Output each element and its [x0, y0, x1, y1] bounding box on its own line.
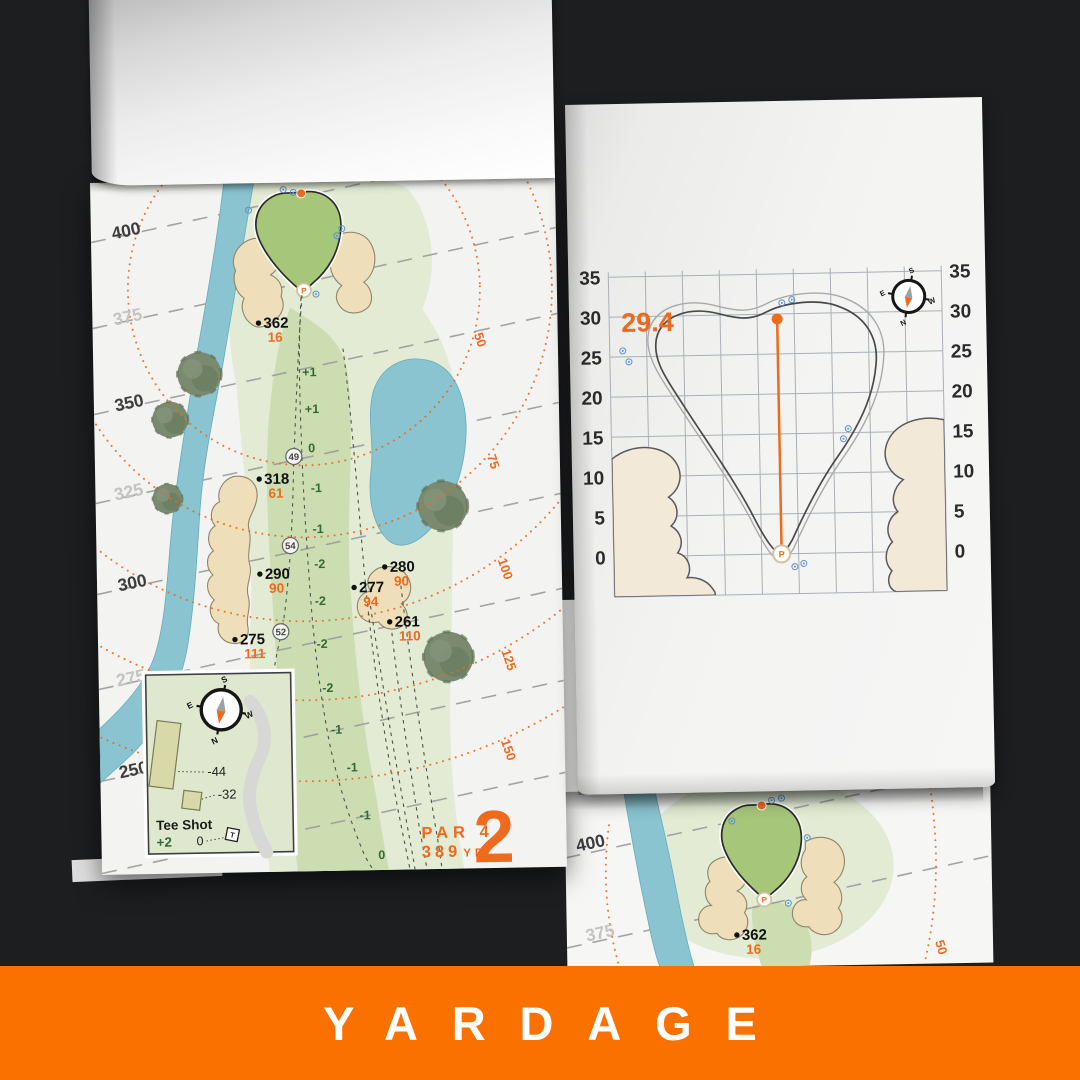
distance-label: 350: [113, 390, 146, 416]
svg-text:35: 35: [579, 268, 601, 289]
arc-label-100: 100: [495, 556, 516, 581]
pin-dot: [297, 189, 306, 198]
svg-text:49: 49: [288, 452, 299, 463]
green-detail-chart: P 29.4 35 30 25 20 15 10 5 0: [565, 97, 995, 795]
banner-label: YARDAGE: [289, 996, 790, 1051]
svg-text:10: 10: [583, 468, 605, 489]
hole-number: 2: [473, 795, 516, 875]
arc-label-50: 50: [471, 330, 490, 349]
svg-text:20: 20: [951, 381, 973, 402]
axis-labels-left: 35 30 25 20 15 10 5 0: [579, 268, 606, 569]
svg-text:P: P: [301, 286, 307, 295]
svg-text:-2: -2: [322, 681, 333, 695]
approach-point: P: [773, 545, 790, 562]
product-photo: P: [0, 0, 1080, 1080]
axis-labels-right: 35 30 25 20 15 10 5 0: [949, 261, 976, 562]
svg-text:15: 15: [952, 421, 974, 442]
distance-label: 375: [584, 920, 617, 946]
svg-text:30: 30: [580, 308, 602, 329]
hole-map: P: [90, 175, 567, 875]
svg-text:54: 54: [285, 541, 296, 552]
svg-text:111: 111: [244, 646, 266, 661]
distance-label: 325: [112, 479, 145, 505]
svg-text:0: 0: [308, 441, 315, 455]
svg-text:W: W: [927, 295, 938, 307]
tee-shot-inset: -44 -32 Tee Shot +2 0 T: [143, 666, 295, 856]
svg-text:P: P: [779, 549, 785, 559]
next-hole-fragment: P 400 375 50 362 16: [564, 783, 993, 970]
svg-text:-2: -2: [314, 557, 325, 571]
green-contour-inner: [655, 301, 880, 556]
arc-label-75: 75: [484, 452, 503, 471]
arc-labels: 50 75 100 125 150: [471, 330, 522, 763]
svg-text:-1: -1: [331, 723, 342, 737]
svg-text:E: E: [878, 288, 886, 298]
green-detail-page: P 29.4 35 30 25 20 15 10 5 0: [565, 97, 995, 795]
arc-label-50: 50: [932, 938, 950, 956]
svg-text:0: 0: [595, 548, 606, 569]
svg-text:N: N: [899, 318, 908, 328]
svg-text:20: 20: [581, 388, 603, 409]
svg-text:52: 52: [275, 627, 286, 638]
svg-text:-1: -1: [311, 481, 322, 495]
arc-label-150: 150: [498, 737, 519, 762]
tee-marker-icon: T: [225, 828, 239, 842]
svg-text:5: 5: [594, 508, 605, 529]
svg-text:35: 35: [949, 261, 971, 282]
approach-point: P: [297, 283, 311, 297]
tee-box-front: [182, 790, 202, 810]
svg-text:90: 90: [394, 573, 409, 588]
svg-text:5: 5: [954, 501, 965, 522]
approach-point: P: [757, 892, 771, 906]
distance-label: 400: [574, 830, 607, 856]
svg-text:-1: -1: [359, 808, 370, 822]
hole-map-page: P: [90, 175, 567, 875]
pin-position-dot: [772, 313, 783, 324]
svg-text:-2: -2: [316, 637, 327, 651]
pin-depth-value: 29.4: [621, 307, 674, 338]
distance-label: 300: [116, 570, 149, 596]
distance-label: 375: [111, 304, 144, 330]
svg-text:+1: +1: [305, 402, 320, 416]
svg-text:P: P: [762, 895, 768, 904]
svg-text:25: 25: [581, 348, 603, 369]
svg-text:25: 25: [951, 341, 973, 362]
distance-label: 400: [110, 218, 143, 244]
svg-text:110: 110: [399, 628, 421, 643]
svg-text:16: 16: [268, 330, 284, 345]
svg-text:15: 15: [582, 428, 604, 449]
handicap-value: +2: [156, 835, 172, 850]
svg-text:0: 0: [378, 848, 385, 862]
yardage-banner: YARDAGE: [0, 966, 1080, 1080]
flipped-up-page: [89, 0, 555, 186]
zero-label: 0: [196, 834, 203, 848]
svg-text:30: 30: [950, 301, 972, 322]
svg-text:-2: -2: [315, 594, 326, 608]
svg-text:0: 0: [954, 541, 965, 562]
svg-text:+1: +1: [302, 365, 317, 379]
svg-text:16: 16: [746, 942, 762, 957]
svg-text:94: 94: [363, 594, 379, 609]
svg-text:61: 61: [268, 486, 284, 501]
svg-text:-1: -1: [347, 760, 358, 774]
bunker: [612, 446, 716, 597]
arc-label-125: 125: [498, 647, 519, 672]
bunker: [884, 418, 948, 592]
tee-offset-front: -32: [218, 787, 237, 802]
tee-offset-back: -44: [207, 764, 226, 779]
svg-text:-1: -1: [312, 522, 323, 536]
svg-text:S: S: [907, 265, 915, 275]
inset-title: Tee Shot: [156, 817, 213, 833]
svg-text:10: 10: [953, 461, 975, 482]
svg-text:90: 90: [269, 581, 284, 596]
